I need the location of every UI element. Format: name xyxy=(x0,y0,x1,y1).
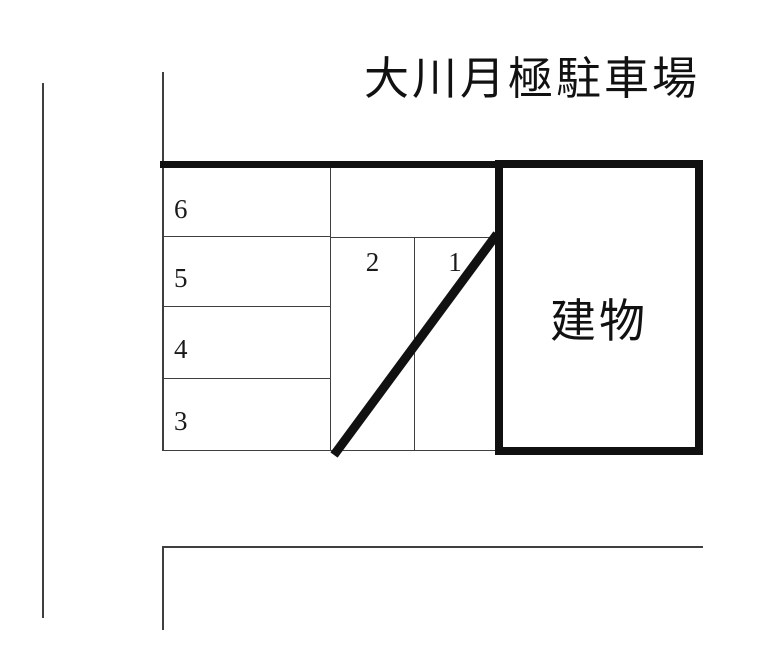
space-6-number: 6 xyxy=(174,196,188,223)
parking-lot-diagram: 大川月極駐車場 6 5 4 3 2 1 建物 xyxy=(0,0,758,666)
parking-space-6: 6 xyxy=(163,168,331,237)
building-label: 建物 xyxy=(550,285,648,351)
parking-space-3: 3 xyxy=(163,379,331,451)
page-title: 大川月極駐車場 xyxy=(340,42,724,107)
parking-space-1: 1 xyxy=(415,237,495,451)
parking-space-4: 4 xyxy=(163,307,331,379)
parking-space-2: 2 xyxy=(331,237,415,451)
parking-space-5: 5 xyxy=(163,237,331,307)
space-2-number: 2 xyxy=(366,249,380,276)
space-4-number: 4 xyxy=(174,336,188,363)
space-5-number: 5 xyxy=(174,265,188,292)
building-outline: 建物 xyxy=(495,160,703,455)
space-3-number: 3 xyxy=(174,408,188,435)
left-road-boundary-line xyxy=(42,83,44,618)
space-1-number: 1 xyxy=(448,249,462,276)
bottom-road-line-vertical xyxy=(162,546,164,630)
bottom-road-line-horizontal xyxy=(162,546,703,548)
